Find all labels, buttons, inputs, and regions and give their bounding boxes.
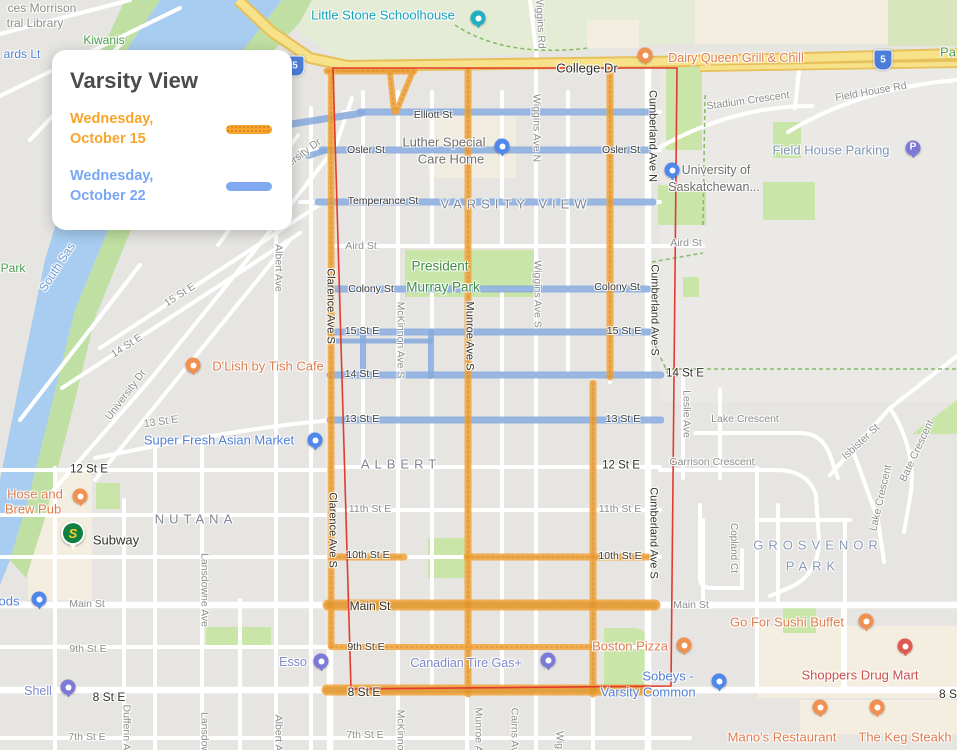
map-label-8-st-e: 8 St E: [93, 691, 126, 703]
map-label-9th-st-e: 9th St E: [347, 642, 384, 653]
map-label-nutana: NUTANA: [155, 513, 237, 526]
map-label-15-st-e: 15 St E: [607, 326, 641, 337]
poi-dot-icon: [312, 437, 318, 443]
map-label-clarence-ave-s: Clarence Ave S: [327, 492, 338, 568]
map-label-murray-park: Murray Park: [406, 280, 480, 294]
hose-and-brew-pub-marker[interactable]: [73, 489, 88, 504]
map-label-ces-morrison: ces Morrison: [8, 2, 77, 14]
map-label-aird-st: Aird St: [345, 241, 377, 252]
map-label-12-st-e: 12 St E: [70, 464, 108, 476]
map-label-hose-and: Hose and: [7, 488, 63, 501]
map-label-canadian-tire-gas: Canadian Tire Gas+: [410, 657, 522, 670]
poi-dot-icon: [669, 167, 675, 173]
map-label-care-home: Care Home: [418, 153, 484, 166]
map-label-shell: Shell: [24, 685, 52, 698]
map-label-ods: ods: [0, 595, 19, 608]
map-label-aird-st: Aird St: [670, 238, 702, 249]
poi-dot-icon: [475, 15, 481, 21]
legend-entry-day: Wednesday,: [70, 110, 153, 130]
map-label-main-st: Main St: [350, 600, 391, 612]
map-label-bate-crescent: Bate Crescent: [898, 419, 936, 484]
poi-dot-icon: [65, 684, 71, 690]
go-for-sushi-buffet-marker[interactable]: [859, 614, 874, 629]
map-label-8-s: 8 S: [939, 688, 957, 700]
poi-dot-icon: [817, 704, 823, 710]
luther-special-care-home-marker[interactable]: [495, 139, 510, 154]
map-label-13-st-e: 13 St E: [143, 414, 179, 429]
map-label-15-st-e: 15 St E: [163, 281, 198, 309]
map-label-wiggins-ave-n: Wiggins Ave N: [531, 94, 542, 162]
map-label-albert: ALBERT: [361, 458, 441, 471]
map-label-wiggins-rd: Wiggins Rd: [533, 0, 546, 49]
map-label-cumberland-ave-s: Cumberland Ave S: [648, 487, 659, 579]
map-label-8-st-e: 8 St E: [348, 686, 381, 698]
map-label-park: PARK: [786, 560, 840, 573]
map-label-lake-crescent: Lake Crescent: [868, 464, 893, 532]
map-label-pa: Pa: [940, 46, 956, 59]
legend-swatch-oct22: [226, 182, 272, 191]
poi-dot-icon: [902, 643, 908, 649]
map-label-11th-st-e: 11th St E: [349, 504, 391, 515]
map-label-wiggins-ave-s: Wiggins Ave S: [532, 260, 543, 328]
map-label-dairy-queen-grill-chill: Dairy Queen Grill & Chill: [668, 52, 803, 65]
map-label-osler-st: Osler St: [602, 145, 640, 156]
poi-dot-icon: [545, 657, 551, 663]
legend-entry-oct15: Wednesday, October 15: [70, 110, 272, 149]
map-label-boston-pizza: Boston Pizza: [592, 640, 668, 653]
boston-pizza-marker[interactable]: [677, 638, 692, 653]
map-label-brew-pub: Brew Pub: [5, 503, 61, 516]
map-label-president: President: [411, 259, 468, 273]
map-label-main-st: Main St: [69, 599, 105, 610]
map-label-mano-s-restaurant: Mano's Restaurant: [728, 731, 837, 744]
map-label-university-of: University of: [682, 164, 751, 177]
poi-dot-icon: [874, 704, 880, 710]
map-label-varsity-view: VARSITY VIEW: [440, 198, 591, 211]
map-label-dufferin-av: Dufferin Av: [121, 705, 132, 750]
map-label-mckinnon-ave-s: McKinnon Ave S: [395, 302, 406, 379]
map-label-saskatchewan: Saskatchewan...: [668, 181, 760, 194]
map-label-luther-special: Luther Special: [402, 136, 485, 149]
legend-entry-date: October 15: [70, 130, 153, 150]
poi-dot-icon: [190, 362, 196, 368]
map-label-14-st-e: 14 St E: [666, 368, 704, 380]
map-label-varsity-common: Varsity Common: [600, 686, 695, 699]
map-label-mckinno: McKinno: [395, 710, 406, 750]
map-label-10th-st-e: 10th St E: [598, 551, 641, 562]
map-label-sobeys: Sobeys -: [642, 670, 693, 683]
sobeys-varsity-common-marker[interactable]: [712, 674, 727, 689]
map-label-college-dr: College Dr: [556, 62, 617, 75]
map-label-13-st-e: 13 St E: [345, 414, 379, 425]
map-label-7th-st-e: 7th St E: [346, 730, 383, 741]
map-label-subway: Subway: [93, 534, 139, 547]
shell-marker[interactable]: [61, 680, 76, 695]
map-label-little-stone-schoolhouse: Little Stone Schoolhouse: [311, 9, 455, 22]
map-label-15-st-e: 15 St E: [345, 326, 379, 337]
map-label-the-keg-steakh: The Keg Steakh: [858, 731, 951, 744]
map-label-field-house-rd: Field House Rd: [834, 81, 907, 104]
poi-dot-icon: [318, 658, 324, 664]
subway-logo-icon: S: [63, 523, 83, 543]
map-label-shoppers-drug-mart: Shoppers Drug Mart: [801, 669, 918, 682]
map-label-copland-ct: Copland Ct: [728, 523, 738, 573]
legend-card: Varsity View Wednesday, October 15 Wedne…: [52, 50, 292, 230]
poi-dot-icon: [716, 678, 722, 684]
map-label-colony-st: Colony St: [594, 282, 640, 293]
map-label-isbister-st: Isbister St: [840, 422, 881, 462]
map-label-cumberland-ave-s: Cumberland Ave S: [649, 264, 660, 356]
map-label-south-sas: South Sas: [37, 241, 77, 294]
map-label-albert-ave: Albert Ave: [273, 244, 284, 292]
shoppers-drug-mart-marker[interactable]: [898, 639, 913, 654]
map-label-14-st-e: 14 St E: [110, 332, 145, 360]
poi-dot-icon: [36, 596, 42, 602]
map-label-main-st: Main St: [673, 600, 709, 611]
map-label-cairns-av: Cairns Av: [509, 708, 520, 750]
manos-restaurant-marker[interactable]: [813, 700, 828, 715]
map-label-ards-lt: ards Lt: [4, 48, 41, 60]
map-label-go-for-sushi-buffet: Go For Sushi Buffet: [730, 616, 844, 629]
map-label-elliott-st: Elliott St: [414, 110, 453, 121]
poi-dot-icon: [642, 52, 648, 58]
map-label-park: Park: [1, 262, 26, 274]
subway-marker[interactable]: S: [61, 521, 85, 545]
map-label-esso: Esso: [279, 656, 307, 669]
map-canvas[interactable]: ces Morrisontral Libraryards LtKiwanisLi…: [0, 0, 957, 750]
university-of-saskatchewan-marker[interactable]: [665, 163, 680, 178]
map-label-munroe-a: Munroe A: [473, 708, 484, 750]
map-label-colony-st: Colony St: [348, 284, 394, 295]
map-label-lansdowne-ave: Lansdowne Ave: [199, 553, 210, 627]
map-label-wig: Wig: [554, 731, 565, 749]
dlish-by-tish-cafe-marker[interactable]: [186, 358, 201, 373]
legend-entry-day: Wednesday,: [70, 167, 153, 187]
legend-swatch-oct15: [226, 125, 272, 134]
poi-dot-icon: [681, 642, 687, 648]
map-label-10th-st-e: 10th St E: [346, 550, 389, 561]
map-label-albert-a: Albert A: [273, 715, 284, 750]
legend-entry-date: October 22: [70, 187, 153, 207]
legend-title: Varsity View: [70, 68, 272, 94]
map-label-munroe-ave-s: Munroe Ave S: [464, 302, 475, 371]
map-label-cumberland-ave-n: Cumberland Ave N: [647, 90, 658, 182]
store-ods-marker[interactable]: [32, 592, 47, 607]
highway-5-shield-icon: 5: [874, 50, 893, 71]
little-stone-schoolhouse-marker[interactable]: [471, 11, 486, 26]
map-label-field-house-parking: Field House Parking: [772, 144, 889, 157]
map-label-9th-st-e: 9th St E: [69, 644, 106, 655]
map-label-d-lish-by-tish-cafe: D'Lish by Tish Cafe: [212, 360, 324, 373]
map-label-lake-crescent: Lake Crescent: [711, 414, 779, 425]
map-label-leslie-ave: Leslie Ave: [681, 390, 692, 438]
map-label-super-fresh-asian-market: Super Fresh Asian Market: [144, 434, 294, 447]
the-keg-steakhouse-marker[interactable]: [870, 700, 885, 715]
dairy-queen-marker[interactable]: [638, 48, 653, 63]
map-label-grosvenor: GROSVENOR: [753, 539, 883, 552]
map-label-11th-st-e: 11th St E: [599, 504, 641, 515]
map-label-garrison-crescent: Garrison Crescent: [669, 457, 754, 468]
map-label-7th-st-e: 7th St E: [68, 732, 105, 743]
map-label-university-dr: University Dr: [104, 368, 149, 422]
map-label-14-st-e: 14 St E: [345, 369, 379, 380]
map-label-kiwanis: Kiwanis: [83, 34, 124, 46]
map-label-clarence-ave-s: Clarence Ave S: [325, 268, 336, 344]
map-label-temperance-st: Temperance St: [348, 196, 419, 207]
map-label-tral-library: tral Library: [7, 17, 64, 29]
super-fresh-asian-market-marker[interactable]: [308, 433, 323, 448]
canadian-tire-gas-marker[interactable]: [541, 653, 556, 668]
parking-icon: P: [906, 142, 921, 153]
poi-dot-icon: [499, 143, 505, 149]
map-label-stadium-crescent: Stadium Crescent: [706, 90, 790, 112]
poi-dot-icon: [77, 493, 83, 499]
legend-entry-oct22: Wednesday, October 22: [70, 167, 272, 206]
field-house-parking-marker[interactable]: P: [906, 141, 921, 156]
poi-dot-icon: [863, 618, 869, 624]
map-label-lansdow: Lansdow: [199, 712, 210, 750]
map-label-12-st-e: 12 St E: [602, 460, 640, 472]
map-label-osler-st: Osler St: [347, 145, 385, 156]
map-label-13-st-e: 13 St E: [606, 414, 640, 425]
esso-marker[interactable]: [314, 654, 329, 669]
